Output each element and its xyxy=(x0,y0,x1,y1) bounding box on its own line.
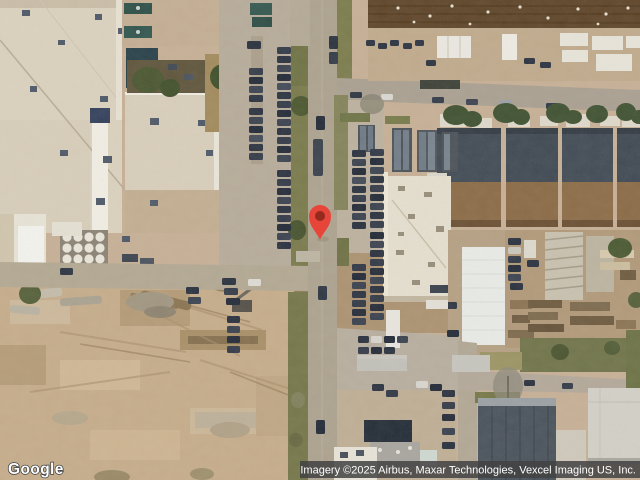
svg-text:Imagery ©2025 Airbus, Maxar Te: Imagery ©2025 Airbus, Maxar Technologies… xyxy=(300,465,636,477)
svg-text:Google: Google xyxy=(8,461,64,478)
